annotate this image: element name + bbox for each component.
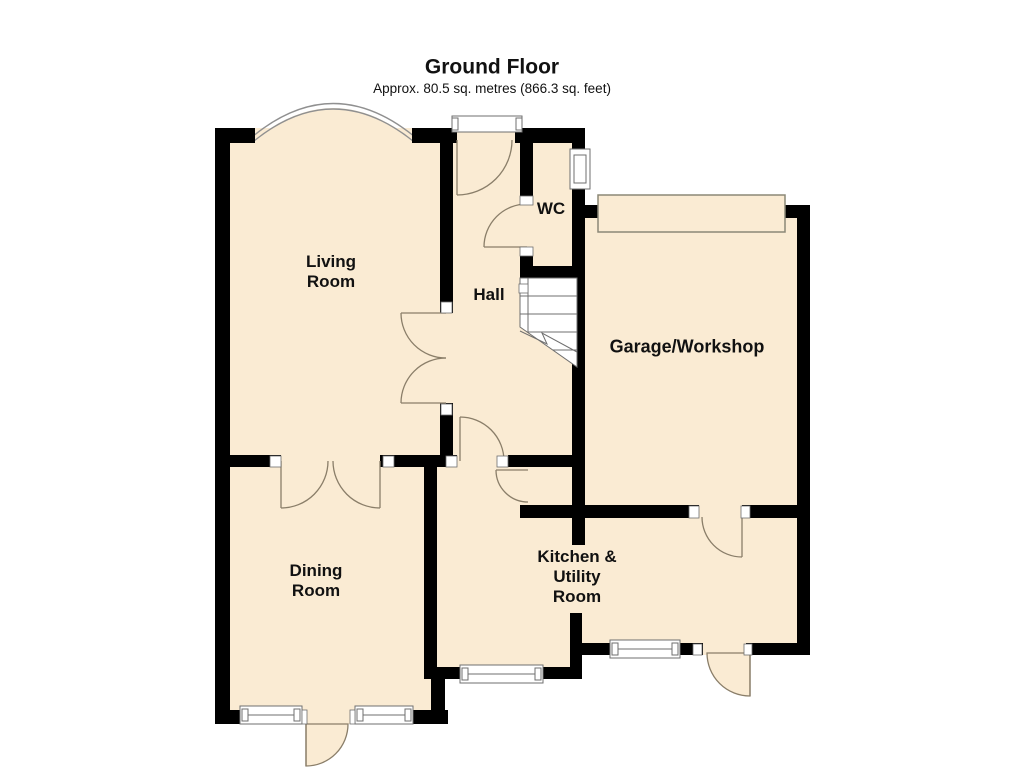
room-label-garage: Garage/Workshop: [610, 336, 765, 357]
wall-dining-kitchen: [424, 455, 437, 679]
front-door-threshold: [452, 116, 522, 132]
french-door-swing: [306, 724, 348, 766]
floor-plan-drawing: [0, 0, 1024, 768]
garage-door: [598, 195, 785, 232]
dining-window-left: [240, 706, 302, 724]
wc-window: [570, 149, 590, 189]
wall-garage-kitchen-2: [742, 505, 810, 518]
room-label-wc: WC: [537, 199, 565, 219]
wall-utility-bottom-3: [746, 643, 810, 655]
wall-garage-kitchen-1: [520, 505, 699, 518]
wall-cupboard-top: [508, 455, 577, 467]
wall-top-mid-stub: [412, 128, 457, 143]
room-label-kitchen: Kitchen & Utility Room: [537, 547, 616, 607]
back-door-swing: [707, 653, 750, 696]
page-title: Ground Floor: [425, 55, 559, 78]
room-label-dining: Dining Room: [290, 561, 343, 601]
wall-wc-left-upper: [520, 128, 533, 203]
page-subtitle: Approx. 80.5 sq. metres (866.3 sq. feet): [373, 81, 611, 97]
wall-right: [797, 205, 810, 655]
kitchen-window: [460, 665, 543, 683]
room-label-hall: Hall: [473, 285, 504, 305]
utility-window: [610, 640, 680, 658]
wall-top-left-stub: [215, 128, 255, 143]
wall-living-hall-upper: [440, 143, 453, 313]
wall-step: [570, 613, 582, 679]
room-label-living: Living Room: [306, 252, 356, 292]
wall-utility-bottom-1: [582, 643, 614, 655]
wall-dining-jog: [431, 667, 445, 724]
dining-window-right: [355, 706, 413, 724]
bay-window: [252, 104, 415, 143]
wall-left: [215, 128, 230, 724]
